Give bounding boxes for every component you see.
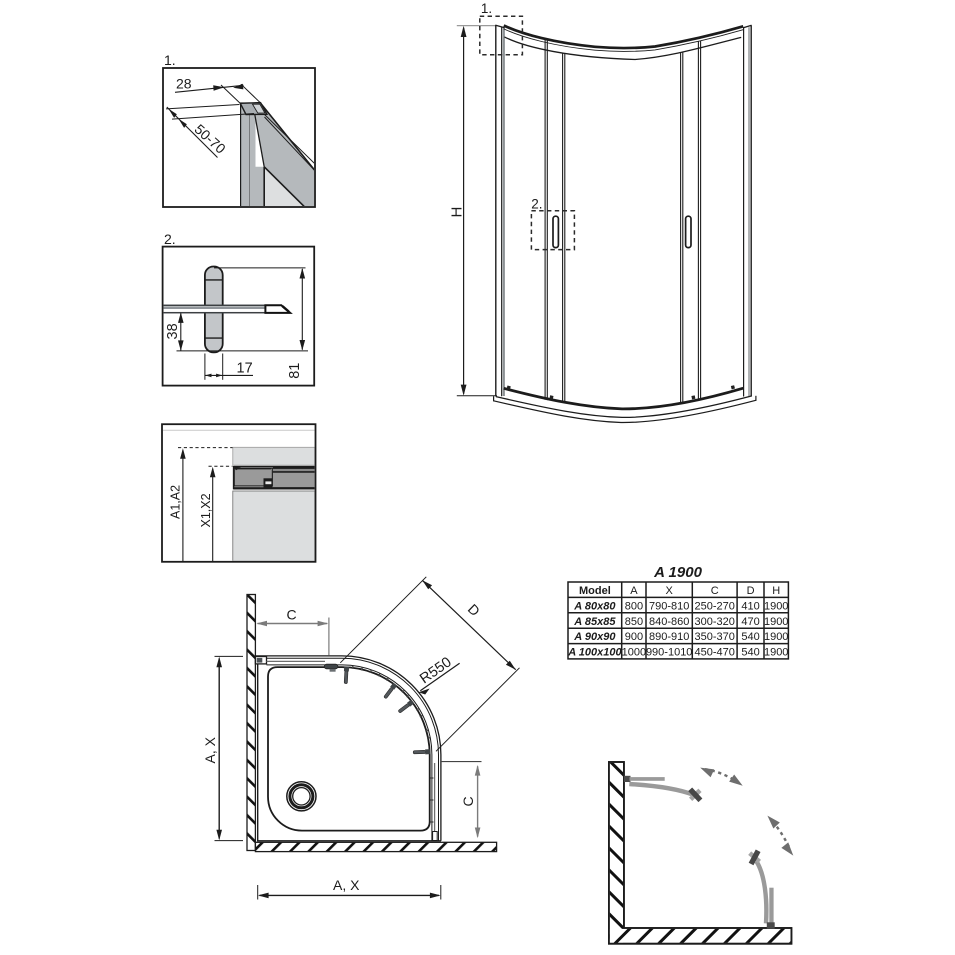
svg-text:2.: 2. [531, 196, 542, 211]
svg-text:38: 38 [165, 323, 181, 339]
svg-text:1900: 1900 [764, 631, 788, 643]
svg-text:A1,A2: A1,A2 [169, 485, 183, 519]
svg-text:410: 410 [741, 600, 759, 612]
svg-text:28: 28 [176, 76, 192, 92]
svg-text:81: 81 [287, 363, 303, 379]
svg-text:H: H [772, 585, 780, 597]
svg-text:790-810: 790-810 [649, 600, 689, 612]
svg-text:250-270: 250-270 [695, 600, 735, 612]
svg-text:A 1900: A 1900 [653, 564, 702, 581]
svg-text:470: 470 [741, 616, 759, 628]
svg-text:840-860: 840-860 [649, 616, 689, 628]
svg-text:A 80x80: A 80x80 [573, 600, 616, 612]
svg-text:A 85x85: A 85x85 [573, 616, 616, 628]
svg-text:A: A [630, 585, 638, 597]
svg-text:350-370: 350-370 [695, 631, 735, 643]
svg-text:1900: 1900 [764, 647, 788, 659]
svg-text:1900: 1900 [764, 600, 788, 612]
svg-text:900: 900 [625, 631, 643, 643]
svg-text:C: C [287, 607, 297, 623]
svg-text:1.: 1. [481, 1, 492, 16]
svg-text:540: 540 [741, 647, 759, 659]
svg-text:H: H [448, 207, 465, 218]
svg-text:R550: R550 [417, 654, 455, 687]
svg-text:A, X: A, X [333, 877, 360, 893]
svg-text:X1,X2: X1,X2 [199, 493, 213, 527]
svg-text:A 90x90: A 90x90 [573, 631, 616, 643]
svg-text:1000: 1000 [622, 647, 646, 659]
svg-text:17: 17 [237, 360, 253, 376]
svg-text:540: 540 [741, 631, 759, 643]
svg-text:2.: 2. [164, 231, 176, 247]
svg-text:A 100x100: A 100x100 [567, 647, 622, 659]
svg-text:D: D [747, 585, 755, 597]
svg-text:X: X [666, 585, 674, 597]
svg-text:C: C [711, 585, 719, 597]
svg-text:990-1010: 990-1010 [646, 647, 693, 659]
svg-text:1900: 1900 [764, 616, 788, 628]
svg-text:890-910: 890-910 [649, 631, 689, 643]
svg-text:850: 850 [625, 616, 643, 628]
svg-text:300-320: 300-320 [695, 616, 735, 628]
svg-text:C: C [460, 796, 476, 806]
svg-text:A, X: A, X [202, 736, 218, 763]
svg-text:Model: Model [579, 585, 611, 597]
svg-text:1.: 1. [164, 52, 176, 68]
svg-text:800: 800 [625, 600, 643, 612]
svg-text:D: D [465, 601, 483, 620]
svg-text:450-470: 450-470 [695, 647, 735, 659]
